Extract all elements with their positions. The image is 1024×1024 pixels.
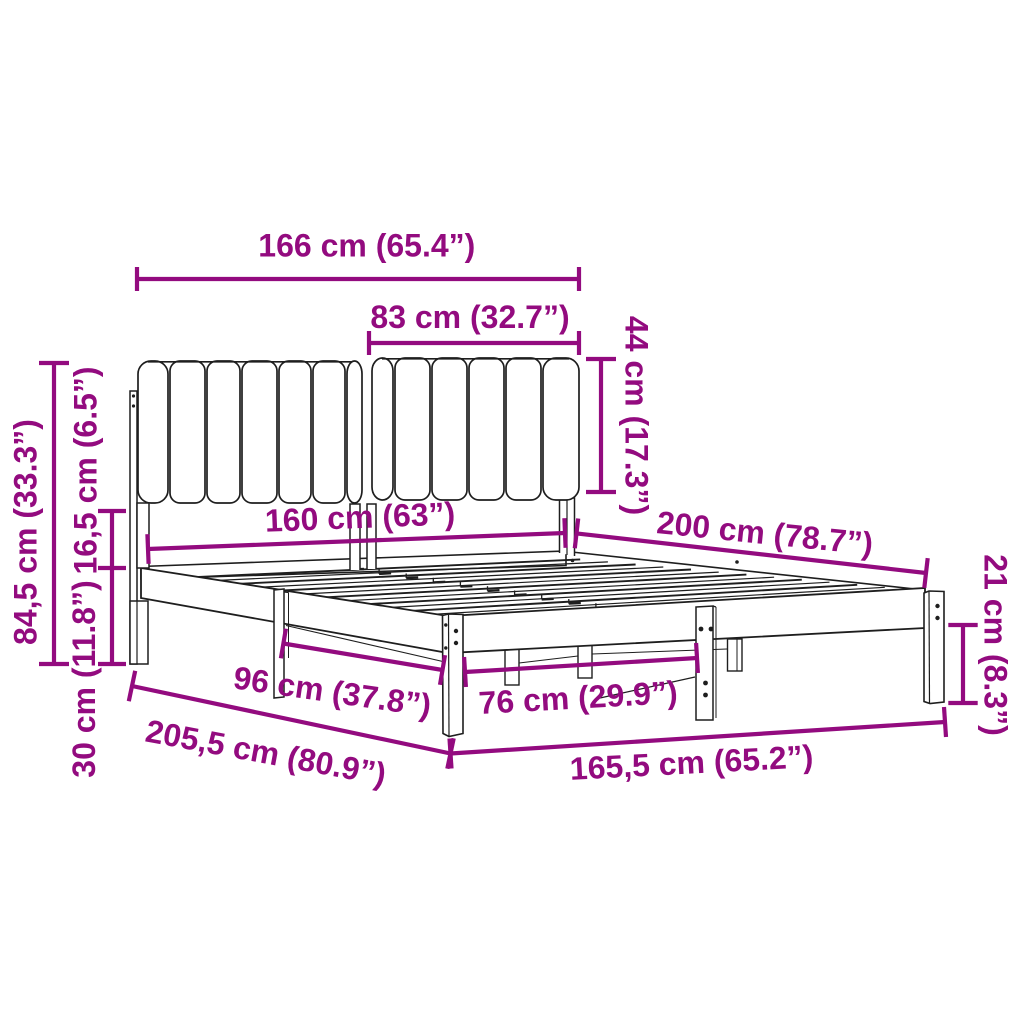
- svg-text:160 cm (63”): 160 cm (63”): [264, 495, 456, 539]
- svg-text:166 cm (65.4”): 166 cm (65.4”): [258, 227, 475, 263]
- svg-text:83 cm (32.7”): 83 cm (32.7”): [370, 299, 569, 335]
- svg-text:16,5 cm (6.5”): 16,5 cm (6.5”): [68, 366, 104, 574]
- svg-text:84,5 cm (33.3”): 84,5 cm (33.3”): [8, 419, 44, 645]
- svg-text:44 cm (17.3”): 44 cm (17.3”): [619, 316, 655, 515]
- svg-text:30 cm (11.8”): 30 cm (11.8”): [66, 580, 102, 777]
- svg-text:21 cm (8.3”): 21 cm (8.3”): [978, 554, 1014, 735]
